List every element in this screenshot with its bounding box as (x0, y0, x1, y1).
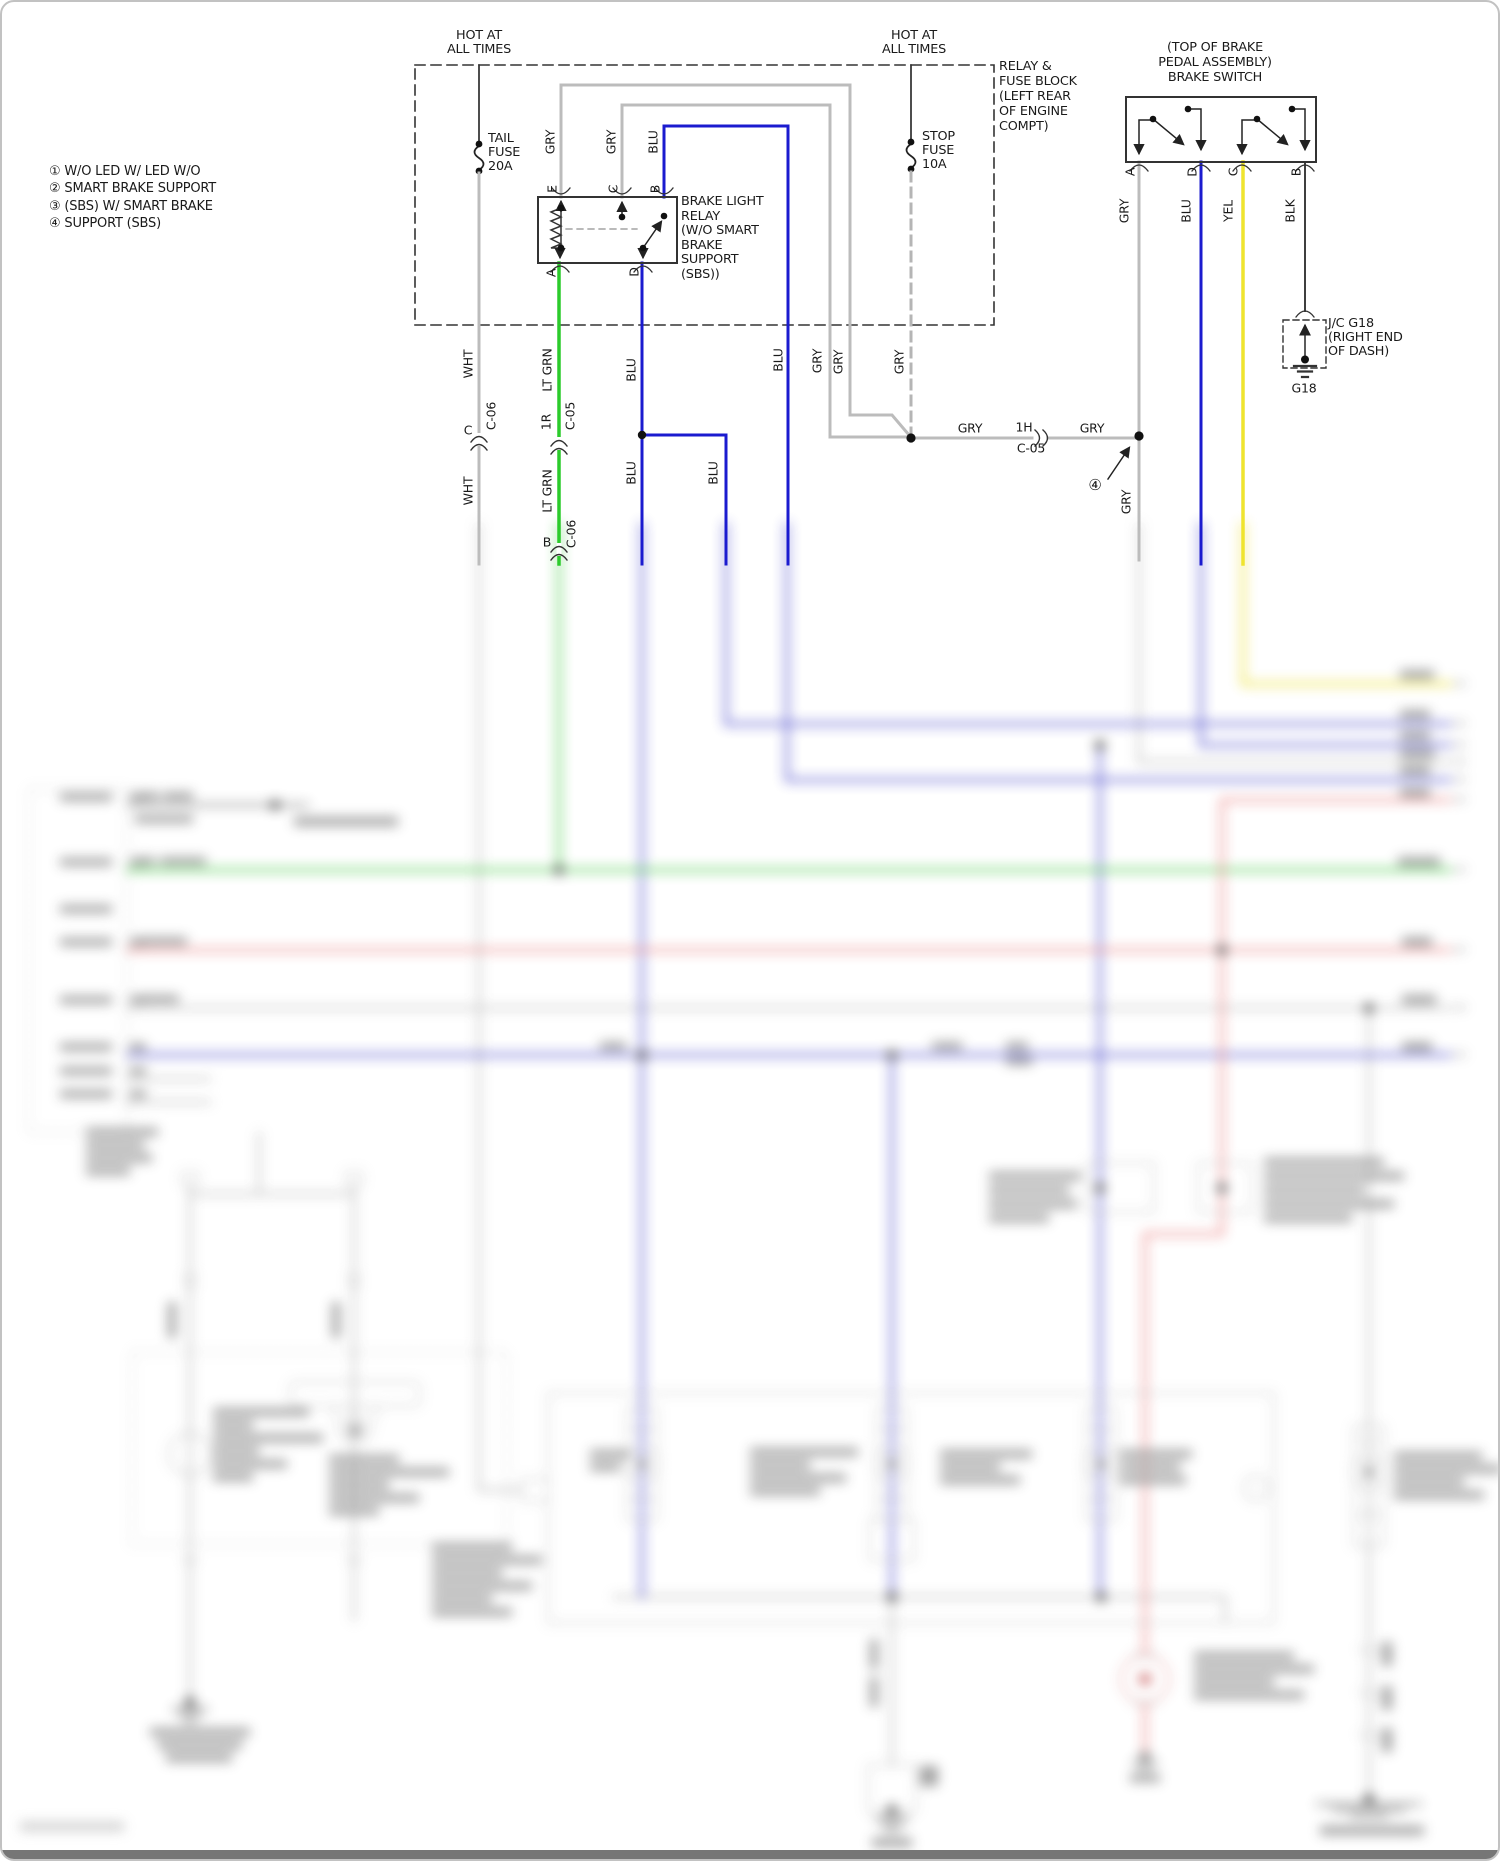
blurred-text-blob (1194, 1665, 1314, 1673)
blurred-text-blob (60, 1090, 112, 1098)
g18-ground (1294, 326, 1316, 377)
blurred-text-blob (1394, 1465, 1500, 1473)
blurred-text-blob (60, 905, 112, 913)
blurred-text-blob (329, 1468, 449, 1476)
brake-switch-internals (1139, 106, 1305, 153)
blurred-text-blob (1382, 1686, 1392, 1710)
blur-text-blobs (20, 670, 1500, 1847)
brake-switch-box (1126, 97, 1316, 162)
blurred-text-blob (60, 1043, 112, 1051)
blurred-text-blob (1400, 670, 1434, 679)
blurred-text-blob (86, 1167, 130, 1175)
blurred-text-blob (329, 1507, 379, 1515)
blurred-text-blob (989, 1172, 1081, 1180)
blurred-text-blob (1454, 948, 1466, 951)
blurred-text-blob (1120, 1463, 1180, 1471)
blurred-text-blob (932, 1042, 962, 1050)
blurred-text-blob (920, 1766, 938, 1786)
blur-red-wires (127, 800, 1450, 1754)
blurred-text-blob (1402, 995, 1436, 1004)
blurred-text-blob (135, 815, 193, 823)
blurred-text-blob (135, 937, 187, 945)
blurred-text-blob (1454, 722, 1466, 725)
blurred-text-blob (872, 1838, 912, 1847)
blurred-text-blob (60, 996, 112, 1004)
blurred-text-blob (989, 1214, 1049, 1222)
blur-grounds (172, 1709, 1422, 1830)
connector-gaps (477, 433, 562, 556)
blurred-text-blob (1382, 1642, 1392, 1666)
blurred-text-blob (1402, 937, 1432, 946)
blurred-text-blob (432, 1582, 532, 1590)
blurred-text-blob (1398, 857, 1440, 866)
schematic-sharp (2, 2, 1500, 602)
blurred-text-blob (213, 1460, 287, 1468)
blurred-text-blob (1400, 731, 1430, 740)
blurred-text-blob (432, 1595, 492, 1603)
left-lamp-dashed-box (132, 1352, 507, 1544)
blurred-text-blob (1402, 1042, 1432, 1051)
blurred-text-blob (86, 1154, 152, 1162)
blurred-text-blob (750, 1474, 846, 1482)
blurred-text-blob (1394, 1452, 1482, 1460)
blurred-text-blob (1194, 1678, 1274, 1686)
edge-bulb (1244, 1476, 1268, 1500)
blurred-text-blob (160, 857, 206, 865)
blurred-text-blob (600, 1042, 626, 1050)
blurred-text-blob (130, 1067, 146, 1075)
blurred-text-blob (1120, 1476, 1186, 1484)
blurred-text-blob (870, 1639, 878, 1669)
blurred-text-blob (1264, 1158, 1384, 1166)
blurred-text-blob (135, 792, 159, 800)
blurred-text-blob (168, 1302, 176, 1338)
blurred-text-blob (60, 938, 112, 946)
blurred-text-blob (1006, 1057, 1032, 1065)
blurred-text-blob (213, 1421, 253, 1429)
blurred-text-blob (989, 1200, 1077, 1208)
blue-wires (642, 126, 1201, 564)
blurred-text-blob (1454, 682, 1466, 685)
blurred-text-blob (130, 1043, 146, 1051)
blurred-text-blob (150, 1728, 250, 1736)
blurred-text-blob (332, 1302, 340, 1338)
blurred-text-blob (1400, 788, 1430, 797)
blurred-text-blob (163, 792, 193, 800)
blurred-text-blob (294, 817, 398, 826)
blurred-text-blob (1130, 1774, 1160, 1782)
blurred-text-blob (590, 1463, 620, 1471)
blurred-text-blob (590, 1450, 630, 1458)
blurred-text-blob (750, 1487, 820, 1495)
blurred-text-blob (940, 1463, 1000, 1471)
blurred-text-blob (158, 1741, 242, 1749)
blurred-text-blob (1194, 1652, 1294, 1660)
blurred-text-blob (1264, 1172, 1404, 1180)
blurred-text-blob (750, 1461, 810, 1469)
blurred-text-blob (130, 1090, 146, 1098)
left-lamp-feed-connector-1 (182, 1172, 198, 1185)
blurred-text-blob (1454, 798, 1466, 801)
blurred-text-blob (870, 1677, 878, 1707)
blurred-text-blob (60, 793, 112, 801)
brake-light-relay-internals (551, 202, 667, 257)
blurred-text-blob (1454, 868, 1466, 871)
left-connector-box (29, 789, 127, 1132)
blurred-text-blob (1320, 1826, 1424, 1835)
blurred-text-blob (1454, 743, 1466, 746)
blurred-text-blob (329, 1481, 389, 1489)
blurred-text-blob (166, 1754, 232, 1762)
blurred-text-blob (60, 1067, 112, 1075)
blurred-text-blob (1194, 1691, 1304, 1699)
blurred-text-blob (1454, 1006, 1466, 1009)
blurred-text-blob (1400, 710, 1430, 719)
blurred-text-blob (86, 1128, 158, 1136)
blurred-text-blob (1006, 1042, 1028, 1050)
blurred-text-blob (213, 1434, 323, 1442)
footnote-4-arrow (1108, 448, 1129, 479)
left-lamp-feed-connector-2 (346, 1172, 362, 1185)
blurred-text-blob (432, 1543, 512, 1551)
blurred-text-blob (20, 1822, 124, 1831)
blurred-text-blob (750, 1448, 858, 1456)
blurred-text-blob (1120, 1450, 1192, 1458)
blurred-text-blob (1454, 760, 1466, 763)
blurred-text-blob (1394, 1478, 1464, 1486)
blurred-text-blob (1264, 1200, 1394, 1208)
blurred-text-blob (86, 1141, 144, 1149)
blurred-text-blob (1264, 1186, 1364, 1194)
center-ground-connector (868, 1765, 916, 1811)
blurred-text-blob (1454, 1053, 1466, 1056)
bottom-scroll-band (2, 1850, 1498, 1859)
wiring-diagram-page: HOT AT ALL TIMESTAIL FUSE 20AHOT AT ALL … (0, 0, 1500, 1861)
blurred-text-blob (1382, 1728, 1392, 1752)
blurred-text-blob (329, 1494, 419, 1502)
blurred-text-blob (1400, 749, 1434, 758)
blurred-text-blob (940, 1450, 1032, 1458)
blurred-text-blob (989, 1186, 1069, 1194)
blurred-text-blob (1394, 1491, 1484, 1499)
blur-wires (127, 524, 1450, 1799)
blurred-text-blob (213, 1408, 309, 1416)
blur-boxes (29, 789, 1385, 1811)
blurred-text-blob (1454, 778, 1466, 781)
blurred-text-blob (329, 1455, 399, 1463)
blurred-text-blob (432, 1556, 542, 1564)
blurred-text-blob (213, 1447, 259, 1455)
blurred-text-blob (60, 858, 112, 866)
blurred-text-blob (432, 1608, 512, 1616)
blurred-text-blob (940, 1476, 1020, 1484)
blurred-text-blob (213, 1473, 253, 1481)
lamp-box-edge-connector (522, 1479, 548, 1501)
blurred-text-blob (135, 995, 179, 1003)
blurred-text-blob (1400, 766, 1430, 775)
blurred-text-blob (432, 1569, 502, 1577)
blurred-text-blob (135, 857, 155, 865)
blurred-text-blob (1264, 1214, 1352, 1222)
